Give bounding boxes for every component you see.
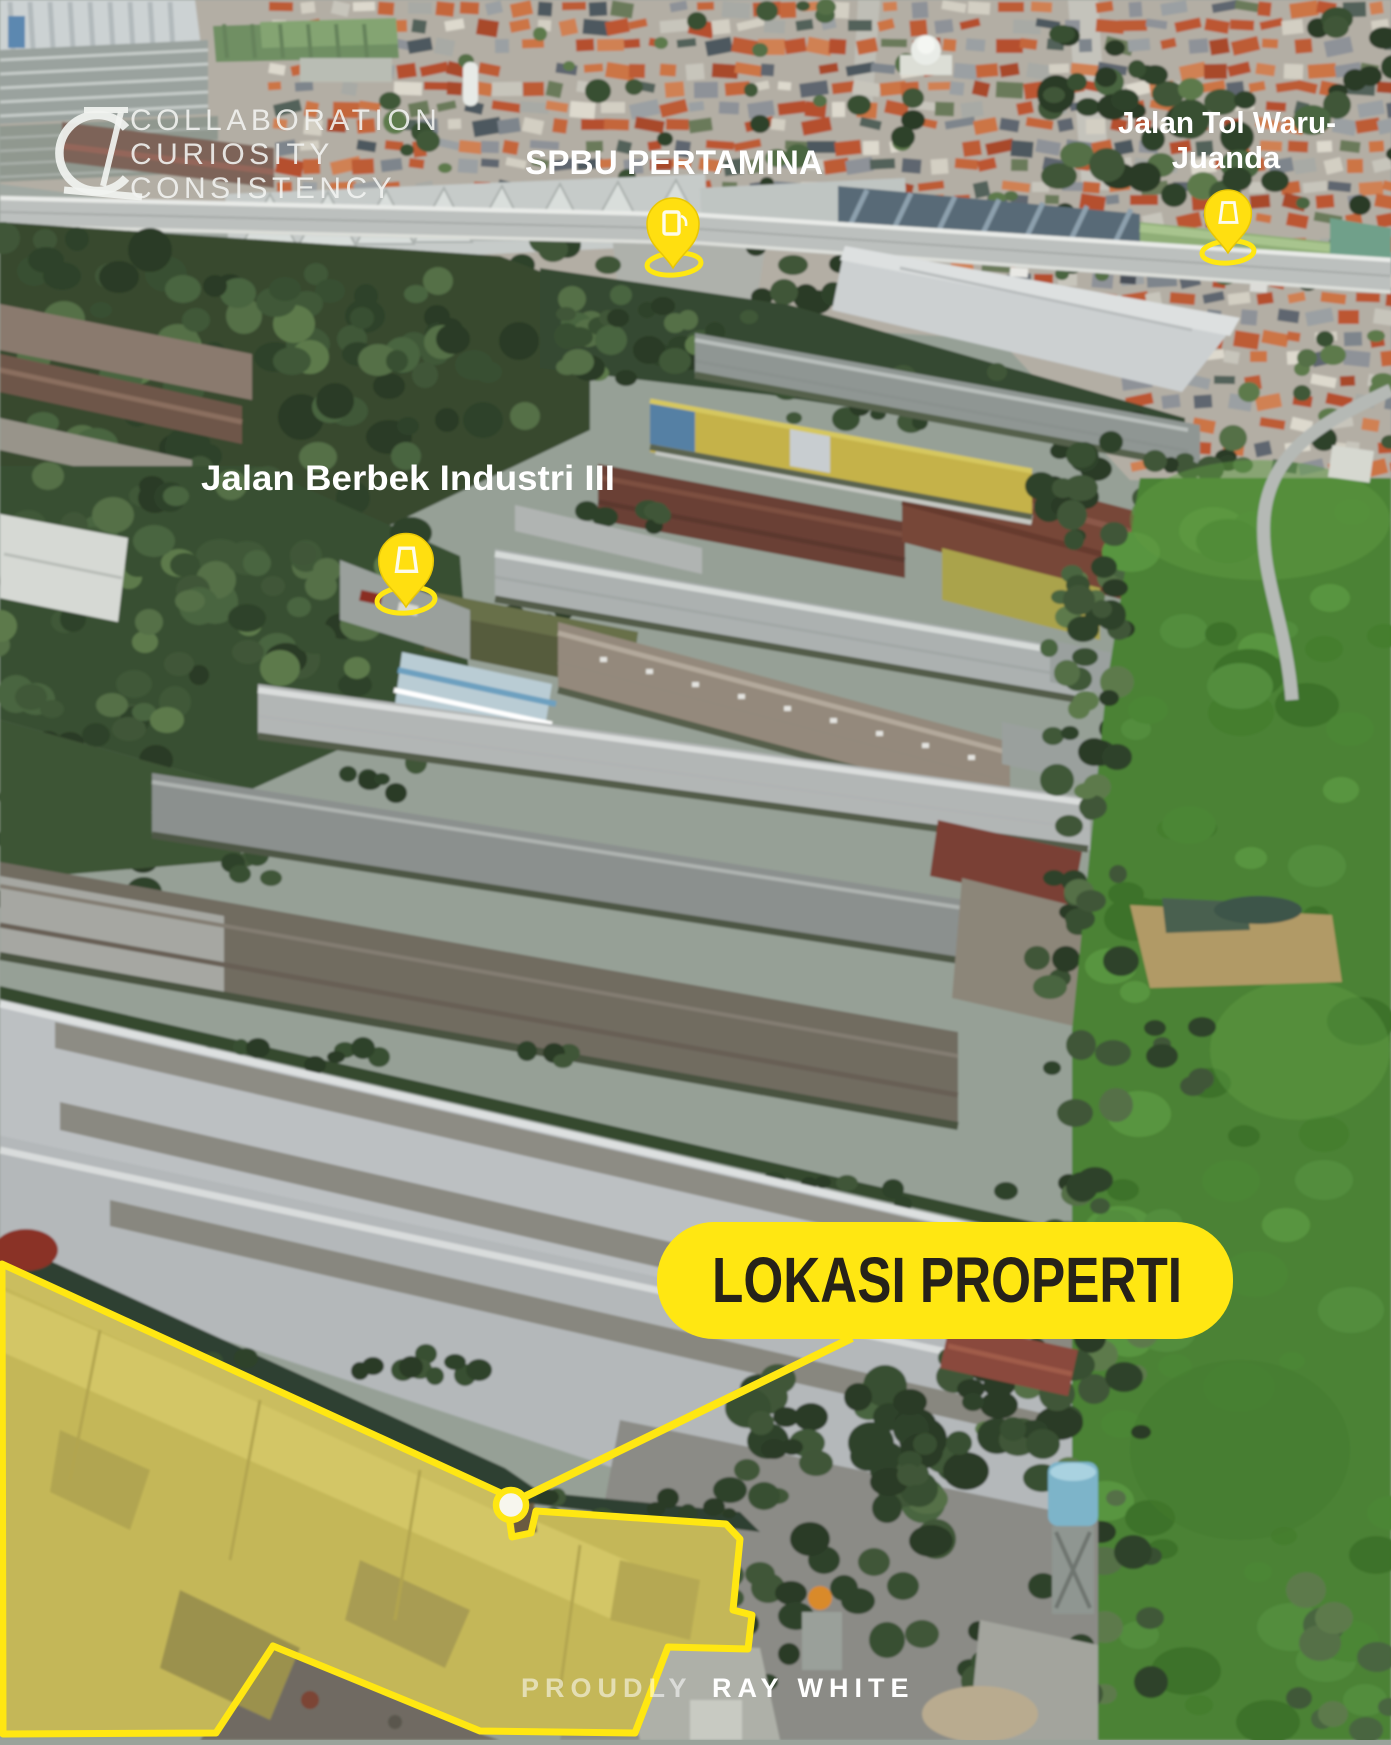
svg-text:CURIOSITY: CURIOSITY (130, 138, 334, 171)
svg-text:PROUDLY: PROUDLY (521, 1673, 693, 1703)
svg-text:COLLABORATION: COLLABORATION (130, 104, 441, 137)
svg-text:Jalan Tol Waru-: Jalan Tol Waru- (1118, 105, 1336, 140)
svg-text:Juanda: Juanda (1172, 140, 1281, 175)
svg-text:SPBU PERTAMINA: SPBU PERTAMINA (525, 144, 823, 182)
svg-text:LOKASI PROPERTI: LOKASI PROPERTI (712, 1244, 1182, 1316)
svg-text:Jalan Berbek Industri III: Jalan Berbek Industri III (201, 459, 615, 498)
svg-text:CONSISTENCY: CONSISTENCY (130, 172, 396, 205)
svg-text:RAY WHITE: RAY WHITE (712, 1673, 915, 1703)
